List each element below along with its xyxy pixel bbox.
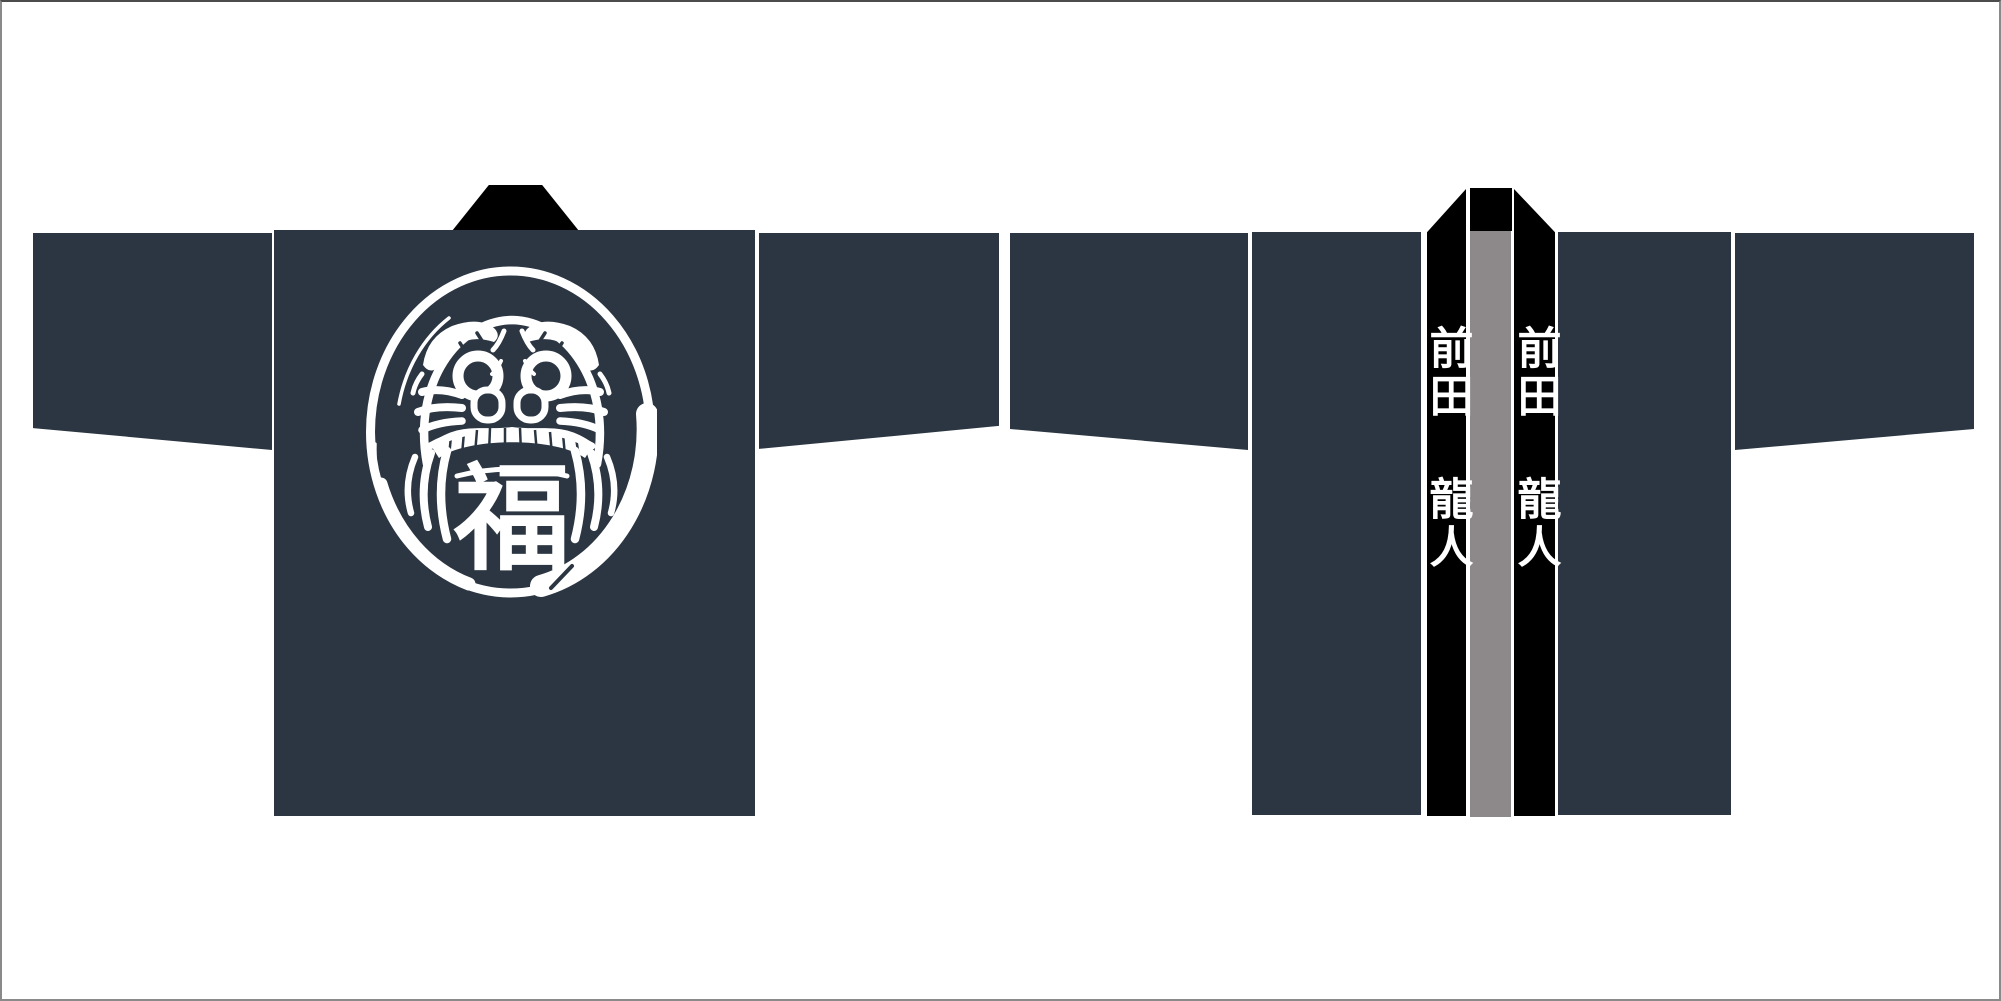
back-left-sleeve bbox=[33, 233, 272, 450]
front-right-sleeve bbox=[1735, 233, 1974, 450]
daruma-face-icon: 福 bbox=[365, 264, 657, 598]
happi-design-proof-canvas: 福 前田 龍人 前田 龍人 bbox=[0, 0, 2001, 1001]
front-left-body-panel bbox=[1252, 232, 1421, 815]
collar-name-column-left: 前田 龍人 bbox=[1427, 325, 1466, 539]
front-collar-top bbox=[1470, 188, 1512, 231]
daruma-eyebrows bbox=[413, 322, 609, 393]
daruma-nose bbox=[474, 390, 545, 420]
fortune-character: 福 bbox=[453, 452, 570, 587]
center-lining-stripe bbox=[1470, 231, 1511, 817]
back-collar-trapezoid bbox=[452, 185, 579, 231]
back-right-sleeve bbox=[759, 233, 999, 450]
collar-name-text-left: 前田 龍人 bbox=[1425, 325, 1469, 572]
collar-name-column-right: 前田 龍人 bbox=[1514, 325, 1555, 539]
collar-name-text-right: 前田 龍人 bbox=[1513, 325, 1557, 572]
front-right-body-panel bbox=[1558, 232, 1731, 815]
daruma-eyes bbox=[458, 356, 566, 396]
front-left-sleeve bbox=[1010, 233, 1248, 450]
